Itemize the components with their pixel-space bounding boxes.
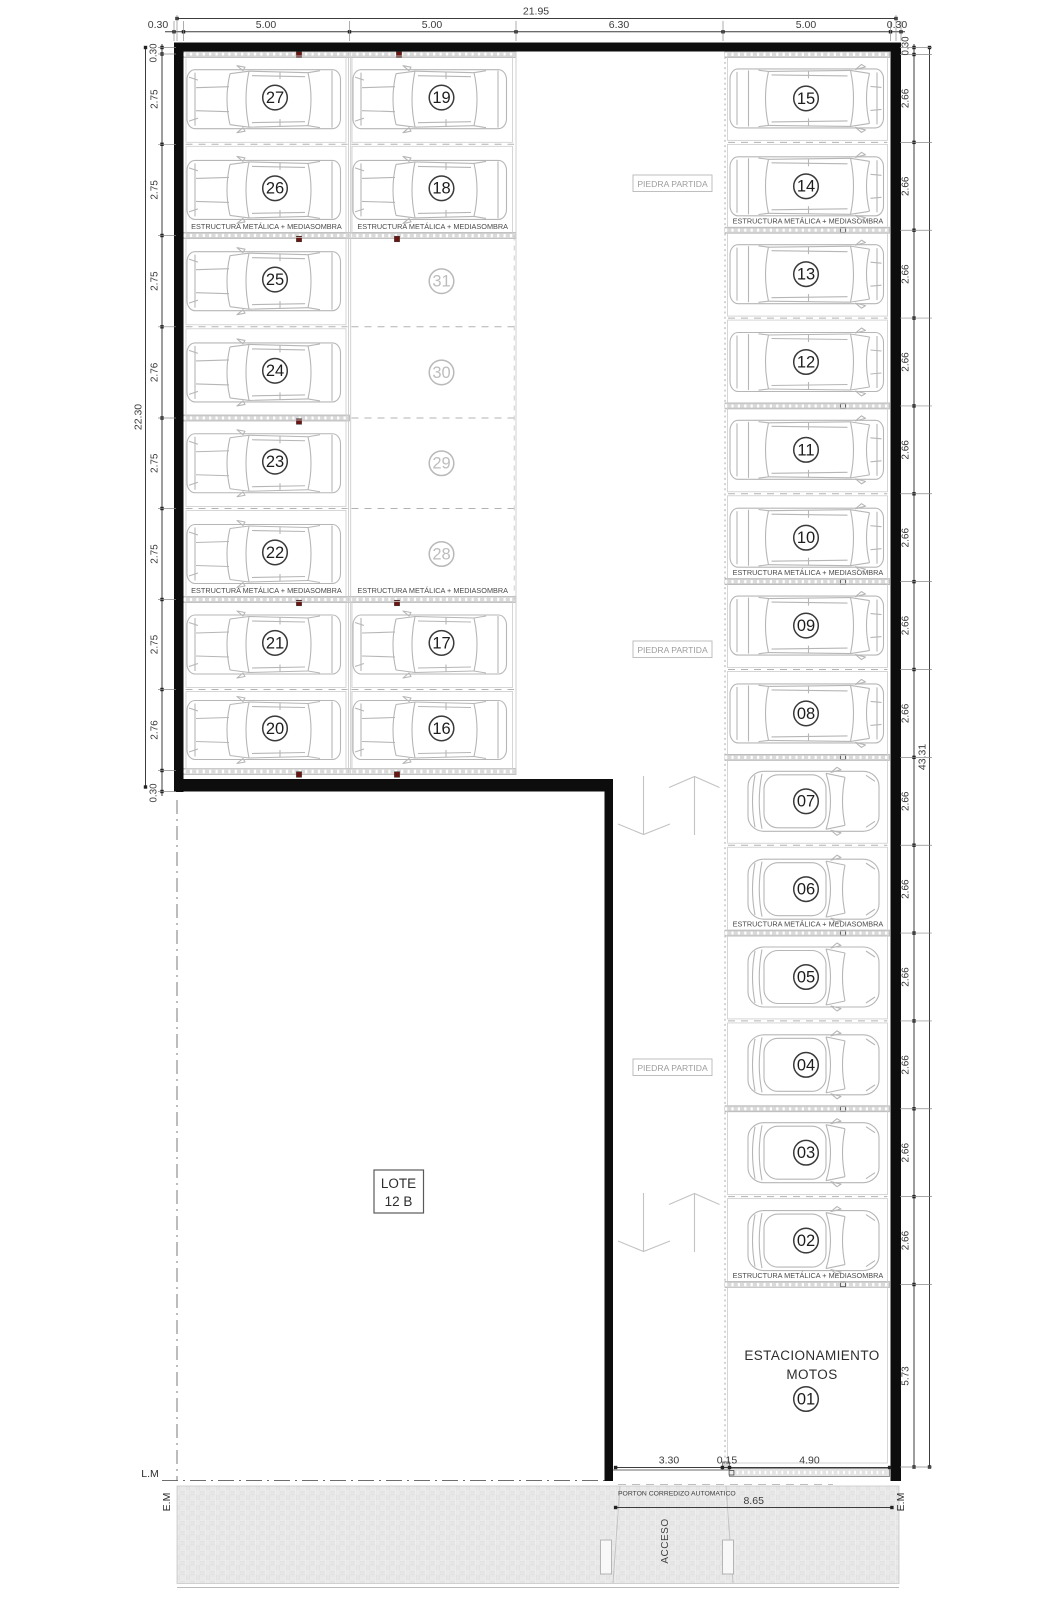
svg-text:2.66: 2.66 — [901, 615, 912, 635]
svg-text:3.30: 3.30 — [659, 1455, 680, 1467]
svg-text:25: 25 — [266, 271, 284, 289]
svg-text:02: 02 — [797, 1232, 815, 1250]
svg-text:PIEDRA PARTIDA: PIEDRA PARTIDA — [637, 645, 708, 655]
svg-text:5.00: 5.00 — [422, 19, 443, 31]
svg-text:0.15: 0.15 — [717, 1455, 738, 1467]
svg-text:ACCESO: ACCESO — [660, 1518, 671, 1563]
svg-text:21.95: 21.95 — [523, 6, 549, 18]
svg-text:PIEDRA PARTIDA: PIEDRA PARTIDA — [637, 179, 708, 189]
svg-text:2.66: 2.66 — [901, 791, 912, 811]
svg-text:01: 01 — [797, 1390, 815, 1408]
svg-text:ESTRUCTURA METÁLICA + MEDIASOM: ESTRUCTURA METÁLICA + MEDIASOMBRA — [733, 920, 884, 929]
svg-text:MOTOS: MOTOS — [786, 1367, 837, 1382]
svg-text:31: 31 — [432, 273, 450, 291]
svg-text:6.30: 6.30 — [609, 19, 630, 31]
svg-text:2.66: 2.66 — [901, 176, 912, 196]
svg-text:ESTRUCTURA METÁLICA + MEDIASOM: ESTRUCTURA METÁLICA + MEDIASOMBRA — [191, 586, 342, 595]
svg-text:5.73: 5.73 — [901, 1366, 912, 1386]
svg-text:43.31: 43.31 — [917, 744, 929, 770]
svg-text:ESTRUCTURA METÁLICA + MEDIASOM: ESTRUCTURA METÁLICA + MEDIASOMBRA — [733, 217, 884, 226]
svg-text:17: 17 — [432, 634, 450, 652]
svg-text:2.75: 2.75 — [150, 634, 161, 654]
svg-text:8.65: 8.65 — [743, 1495, 764, 1507]
svg-text:2.66: 2.66 — [901, 352, 912, 372]
svg-text:08: 08 — [797, 705, 815, 723]
svg-text:2.75: 2.75 — [150, 453, 161, 473]
svg-text:22.30: 22.30 — [133, 404, 145, 430]
svg-text:2.75: 2.75 — [150, 89, 161, 109]
svg-text:2.66: 2.66 — [901, 1143, 912, 1163]
svg-text:ESTRUCTURA METÁLICA + MEDIASOM: ESTRUCTURA METÁLICA + MEDIASOMBRA — [357, 222, 508, 231]
svg-text:06: 06 — [797, 881, 815, 899]
svg-text:L.M: L.M — [141, 1468, 159, 1480]
svg-text:14: 14 — [797, 178, 815, 196]
svg-text:03: 03 — [797, 1144, 815, 1162]
svg-text:15: 15 — [797, 90, 815, 108]
svg-text:E.M: E.M — [895, 1493, 907, 1512]
svg-text:18: 18 — [432, 180, 450, 198]
svg-text:2.75: 2.75 — [150, 271, 161, 291]
svg-text:ESTRUCTURA METÁLICA + MEDIASOM: ESTRUCTURA METÁLICA + MEDIASOMBRA — [733, 1271, 884, 1280]
svg-text:10: 10 — [797, 529, 815, 547]
svg-text:PORTON CORREDIZO AUTOMATICO: PORTON CORREDIZO AUTOMATICO — [618, 1491, 736, 1498]
svg-text:2.76: 2.76 — [150, 362, 161, 382]
svg-text:22: 22 — [266, 544, 284, 562]
svg-text:2.66: 2.66 — [901, 703, 912, 723]
svg-text:ESTRUCTURA METÁLICA + MEDIASOM: ESTRUCTURA METÁLICA + MEDIASOMBRA — [357, 586, 508, 595]
svg-text:PIEDRA PARTIDA: PIEDRA PARTIDA — [637, 1063, 708, 1073]
svg-text:26: 26 — [266, 180, 284, 198]
svg-text:0.30: 0.30 — [887, 19, 908, 31]
svg-text:0.30: 0.30 — [149, 783, 160, 803]
svg-text:2.66: 2.66 — [901, 88, 912, 108]
svg-text:19: 19 — [432, 89, 450, 107]
svg-text:30: 30 — [432, 364, 450, 382]
svg-text:23: 23 — [266, 453, 284, 471]
svg-text:04: 04 — [797, 1056, 815, 1074]
svg-text:ESTRUCTURA METÁLICA + MEDIASOM: ESTRUCTURA METÁLICA + MEDIASOMBRA — [191, 222, 342, 231]
svg-text:07: 07 — [797, 793, 815, 811]
svg-text:2.66: 2.66 — [901, 1055, 912, 1075]
svg-text:0.30: 0.30 — [901, 36, 912, 56]
svg-text:2.66: 2.66 — [901, 1230, 912, 1250]
svg-text:5.00: 5.00 — [796, 19, 817, 31]
svg-text:27: 27 — [266, 89, 284, 107]
svg-text:2.66: 2.66 — [901, 967, 912, 987]
svg-text:0.30: 0.30 — [148, 19, 169, 31]
svg-text:LOTE: LOTE — [381, 1176, 416, 1191]
svg-text:2.66: 2.66 — [901, 440, 912, 460]
svg-text:20: 20 — [266, 720, 284, 738]
svg-text:13: 13 — [797, 266, 815, 284]
svg-text:28: 28 — [432, 545, 450, 563]
svg-text:09: 09 — [797, 617, 815, 635]
svg-text:2.76: 2.76 — [150, 720, 161, 740]
svg-text:05: 05 — [797, 968, 815, 986]
svg-text:29: 29 — [432, 455, 450, 473]
svg-text:2.75: 2.75 — [150, 544, 161, 564]
svg-text:ESTACIONAMIENTO: ESTACIONAMIENTO — [744, 1348, 879, 1363]
svg-text:2.66: 2.66 — [901, 264, 912, 284]
svg-text:2.75: 2.75 — [150, 180, 161, 200]
svg-text:ESTRUCTURA METÁLICA + MEDIASOM: ESTRUCTURA METÁLICA + MEDIASOMBRA — [733, 568, 884, 577]
svg-text:16: 16 — [432, 720, 450, 738]
svg-text:11: 11 — [797, 441, 814, 459]
svg-text:0.30: 0.30 — [149, 43, 160, 63]
svg-text:24: 24 — [266, 362, 284, 380]
svg-text:21: 21 — [266, 634, 284, 652]
svg-text:2.66: 2.66 — [901, 879, 912, 899]
svg-text:E.M: E.M — [161, 1493, 173, 1512]
svg-text:12: 12 — [797, 353, 815, 371]
svg-text:12 B: 12 B — [385, 1194, 413, 1209]
svg-text:2.66: 2.66 — [901, 528, 912, 548]
svg-text:5.00: 5.00 — [256, 19, 277, 31]
svg-text:4.90: 4.90 — [799, 1455, 820, 1467]
